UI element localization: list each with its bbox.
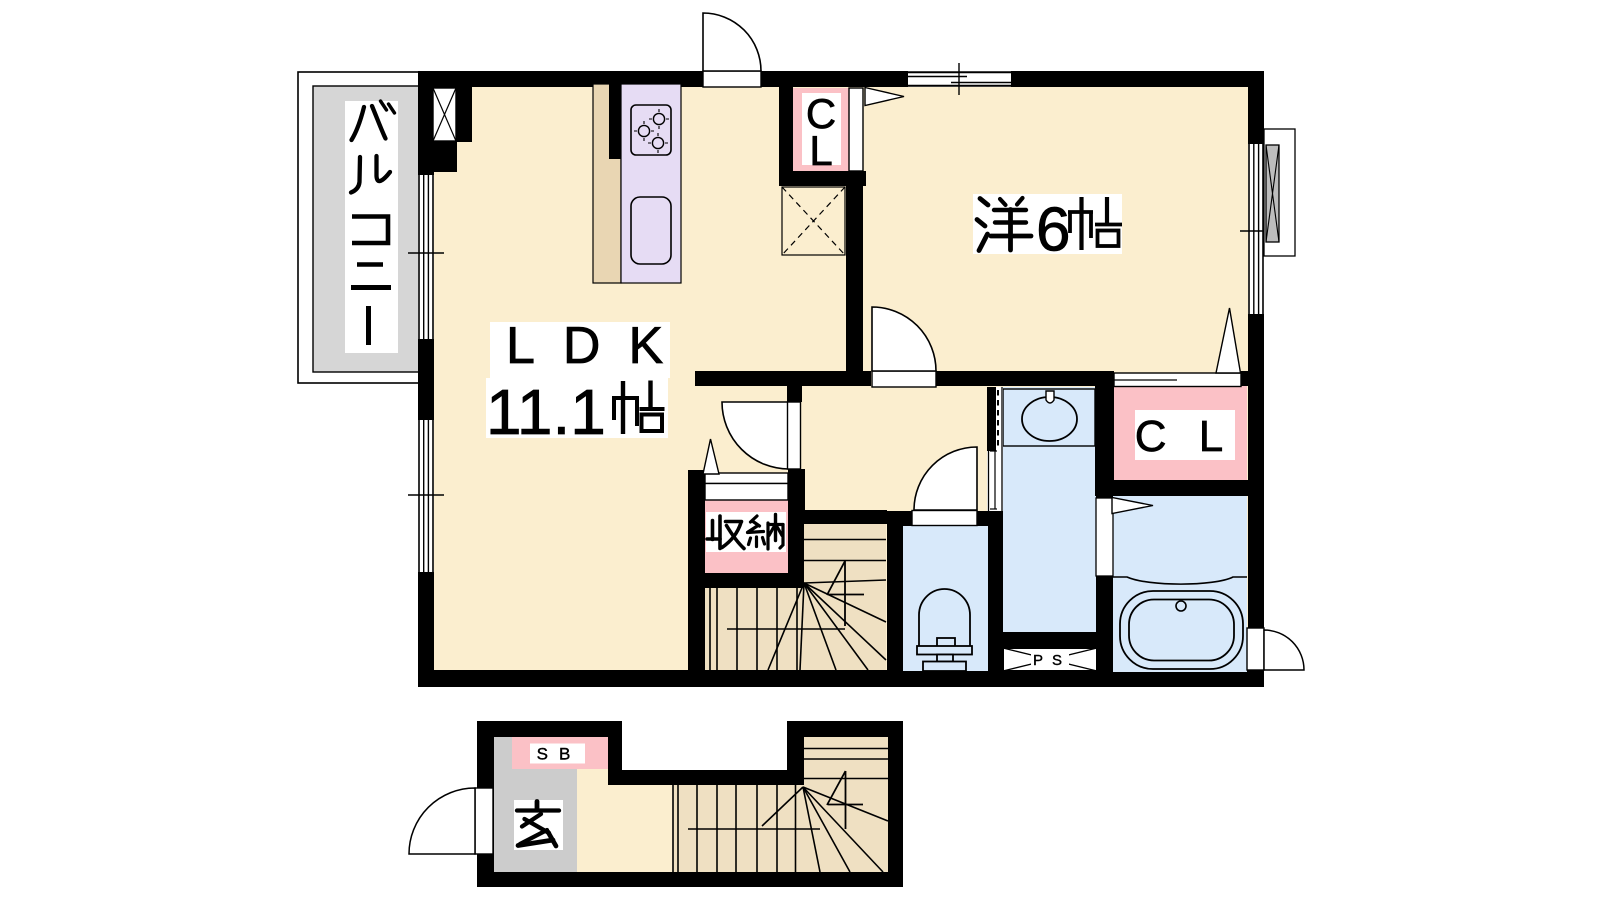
svg-text:11.1: 11.1	[486, 376, 606, 448]
svg-text:PS: PS	[1033, 652, 1071, 669]
svg-text:6: 6	[1036, 196, 1070, 265]
svg-text:SB: SB	[537, 745, 582, 764]
svg-text:LDK: LDK	[506, 317, 691, 375]
svg-text:C L: C L	[1135, 412, 1233, 461]
svg-text:L: L	[809, 127, 832, 174]
